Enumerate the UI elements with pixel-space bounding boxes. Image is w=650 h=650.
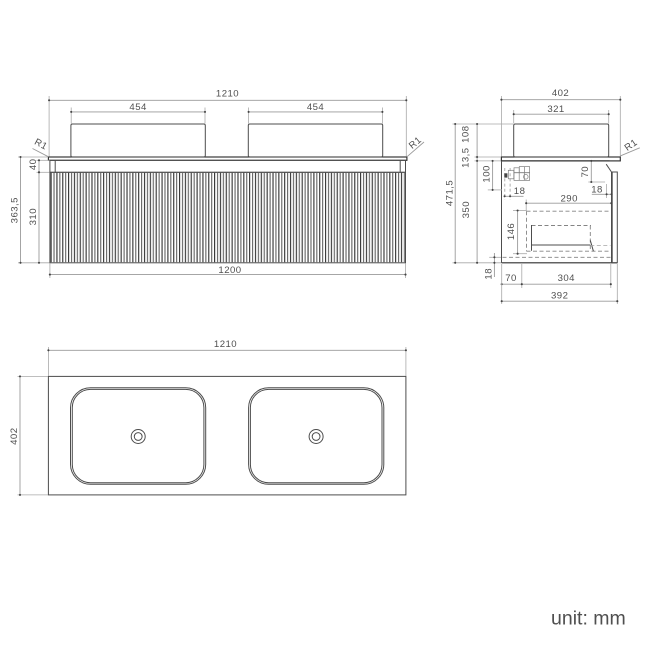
svg-text:321: 321	[547, 104, 564, 115]
svg-text:108: 108	[461, 126, 472, 143]
svg-text:40: 40	[28, 159, 39, 171]
svg-text:290: 290	[561, 194, 578, 205]
svg-text:unit: mm: unit: mm	[551, 608, 626, 630]
svg-text:18: 18	[514, 186, 526, 197]
svg-text:304: 304	[558, 273, 576, 284]
svg-text:100: 100	[481, 165, 492, 182]
svg-text:70: 70	[505, 273, 517, 284]
svg-text:1210: 1210	[214, 339, 237, 350]
svg-text:146: 146	[506, 223, 517, 240]
svg-text:402: 402	[9, 428, 20, 445]
svg-text:70: 70	[580, 166, 591, 178]
svg-text:350: 350	[461, 201, 472, 218]
svg-text:402: 402	[552, 88, 569, 99]
svg-text:1200: 1200	[218, 265, 241, 276]
svg-text:363,5: 363,5	[10, 197, 21, 223]
svg-text:310: 310	[28, 208, 39, 225]
svg-text:18: 18	[591, 184, 603, 195]
svg-text:454: 454	[129, 102, 147, 113]
svg-text:13,5: 13,5	[461, 147, 472, 167]
svg-text:454: 454	[307, 102, 325, 113]
svg-text:1210: 1210	[216, 89, 239, 100]
svg-text:471,5: 471,5	[445, 180, 456, 206]
svg-text:392: 392	[551, 290, 568, 301]
svg-text:18: 18	[483, 268, 494, 280]
